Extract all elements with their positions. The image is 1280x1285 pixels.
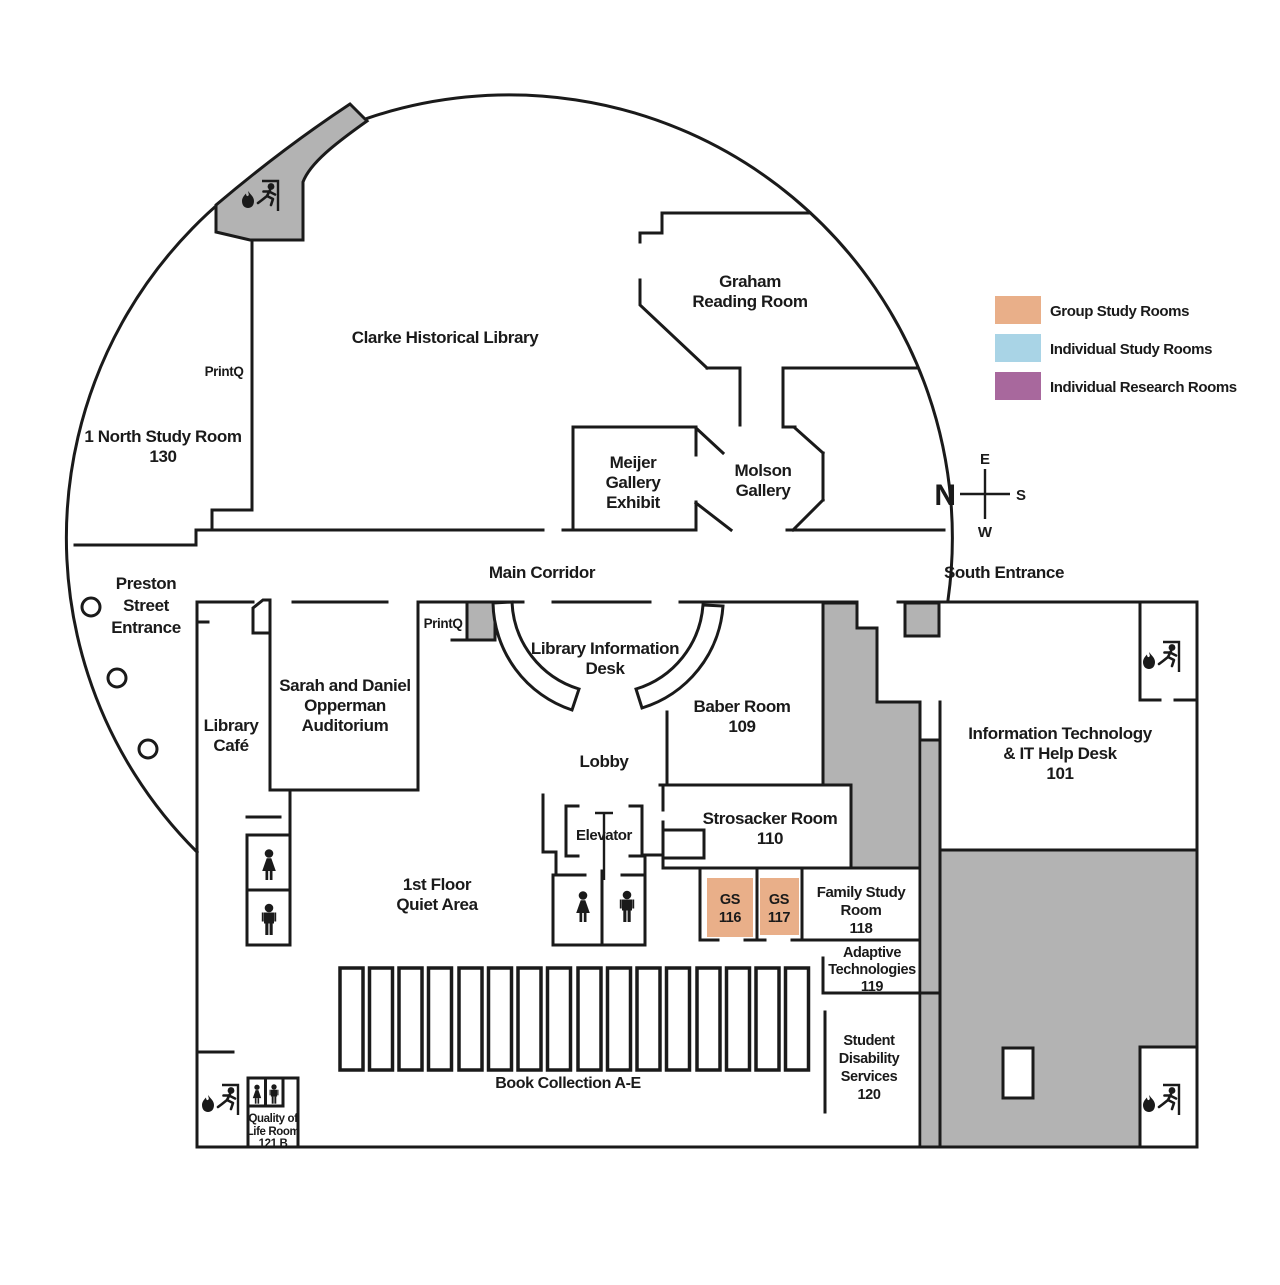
room-label-molson: Molson — [734, 461, 791, 480]
room-label-adaptive: 119 — [861, 979, 884, 995]
book-stack — [548, 968, 571, 1070]
room-label-family: Family Study — [817, 884, 907, 901]
compass-south: S — [1016, 487, 1026, 504]
room-label-elevator: Elevator — [576, 827, 633, 844]
room-label-disability: Student — [843, 1033, 895, 1049]
corridor-label: Main Corridor — [489, 563, 596, 582]
room-label-baber: 109 — [728, 717, 755, 736]
pillar-circle — [108, 669, 126, 687]
room-label-printq-lower: PrintQ — [424, 616, 463, 631]
room-label-opperman: Opperman — [304, 696, 386, 715]
book-stack — [667, 968, 690, 1070]
book-stack — [399, 968, 422, 1070]
room-label-adaptive: Technologies — [828, 962, 916, 978]
wall-segment — [212, 240, 252, 530]
auditorium-door — [253, 600, 270, 633]
compass-west: W — [978, 524, 993, 541]
room-label-family: Room — [841, 902, 882, 919]
book-stack — [756, 968, 779, 1070]
book-stack — [489, 968, 512, 1070]
elevator-symbol — [595, 813, 613, 880]
room-label-info-desk: Library Information — [531, 639, 679, 658]
book-stack — [727, 968, 750, 1070]
room-label-it: & IT Help Desk — [1003, 744, 1117, 763]
room-label-clarke: Clarke Historical Library — [352, 328, 539, 347]
legend-swatch-group-study — [995, 296, 1041, 324]
book-stack — [459, 968, 482, 1070]
fire-exit-icon — [202, 1085, 238, 1115]
compass: E S W N — [934, 451, 1026, 541]
book-stack — [608, 968, 631, 1070]
room-label-baber: Baber Room — [693, 697, 790, 716]
room-label-gs116: GS — [720, 892, 741, 908]
room-label-gs116: 116 — [719, 910, 742, 926]
restroom-man-icon — [262, 904, 276, 935]
service-cutout — [1003, 1048, 1033, 1098]
quiet-area-label: Quiet Area — [396, 895, 478, 914]
book-stack — [697, 968, 720, 1070]
room-label-preston: Street — [123, 596, 170, 615]
room-label-strosacker: 110 — [757, 829, 783, 848]
room-label-north-study: 1 North Study Room — [84, 427, 241, 446]
room-label-quality: 121 B — [259, 1138, 288, 1150]
printq-kiosk-block — [467, 602, 495, 640]
room-label-gs117: GS — [769, 892, 790, 908]
room-label-north-study: 130 — [149, 447, 176, 466]
room-label-opperman: Auditorium — [302, 716, 389, 735]
south-entrance-label: South Entrance — [944, 563, 1064, 582]
legend-label-group-study: Group Study Rooms — [1050, 303, 1189, 320]
room-label-family: 118 — [850, 920, 873, 937]
room-label-graham: Graham — [719, 272, 781, 291]
book-stack — [370, 968, 393, 1070]
room-label-quality: Quality of — [248, 1113, 298, 1125]
room-label-printq-upper: PrintQ — [205, 364, 244, 379]
room-label-it: Information Technology — [968, 724, 1152, 743]
book-stack — [429, 968, 452, 1070]
book-stacks — [340, 968, 809, 1070]
book-stack — [578, 968, 601, 1070]
room-label-cafe: Library — [204, 716, 260, 735]
restroom-center-walls — [553, 855, 663, 945]
fire-exit-icon — [1143, 642, 1179, 672]
room-label-opperman: Sarah and Daniel — [279, 676, 411, 695]
room-label-preston: Preston — [116, 574, 177, 593]
room-label-strosacker: Strosacker Room — [703, 809, 838, 828]
floor-plan-svg: E S W N Group Study Rooms Individual Stu… — [0, 0, 1280, 1280]
room-label-disability: Services — [841, 1069, 898, 1085]
south-entrance-block — [905, 603, 939, 636]
compass-cross — [960, 469, 1010, 519]
room-label-graham: Reading Room — [692, 292, 807, 311]
room-label-quality: Life Room — [247, 1126, 300, 1138]
room-label-meijer: Exhibit — [606, 493, 661, 512]
service-core-center — [823, 603, 920, 868]
book-stack — [340, 968, 363, 1070]
restroom-woman-icon — [253, 1085, 261, 1104]
legend-label-individual-study: Individual Study Rooms — [1050, 341, 1212, 358]
room-label-disability: 120 — [858, 1087, 881, 1103]
fire-exit-alcove-northwest — [216, 104, 367, 240]
wall-segment — [707, 368, 918, 425]
pillar-circle — [82, 598, 100, 616]
compass-north: N — [934, 479, 955, 512]
legend-label-individual-research: Individual Research Rooms — [1050, 379, 1237, 396]
circular-wing-outline — [66, 95, 952, 852]
room-label-lobby: Lobby — [580, 752, 630, 771]
walls-upper-section — [75, 213, 944, 545]
lobby-step-wall — [543, 795, 556, 875]
book-stack — [637, 968, 660, 1070]
room-label-cafe: Café — [213, 736, 248, 755]
wall-segment — [75, 530, 944, 545]
room-label-disability: Disability — [839, 1051, 900, 1067]
book-stack — [518, 968, 541, 1070]
room-label-molson: Gallery — [736, 481, 792, 500]
legend: Group Study Rooms Individual Study Rooms… — [995, 296, 1237, 400]
room-label-gs117: 117 — [768, 910, 791, 926]
restroom-man-icon — [270, 1084, 279, 1103]
quiet-area-label: 1st Floor — [403, 875, 472, 894]
compass-east: E — [980, 451, 990, 468]
room-label-preston: Entrance — [111, 618, 181, 637]
room-label-meijer: Meijer — [610, 453, 658, 472]
restroom-woman-icon — [576, 891, 590, 922]
legend-swatch-individual-research — [995, 372, 1041, 400]
restroom-woman-icon — [262, 849, 276, 880]
legend-swatch-individual-study — [995, 334, 1041, 362]
restroom-man-icon — [620, 891, 634, 922]
pillar-circle — [139, 740, 157, 758]
room-label-meijer: Gallery — [606, 473, 662, 492]
room-label-it: 101 — [1046, 764, 1073, 783]
floor-plan-page: E S W N Group Study Rooms Individual Stu… — [0, 0, 1280, 1280]
book-collection-label: Book Collection A-E — [495, 1075, 641, 1092]
service-strip — [922, 740, 940, 1147]
book-stack — [786, 968, 809, 1070]
room-label-adaptive: Adaptive — [843, 945, 901, 961]
room-label-info-desk: Desk — [585, 659, 625, 678]
